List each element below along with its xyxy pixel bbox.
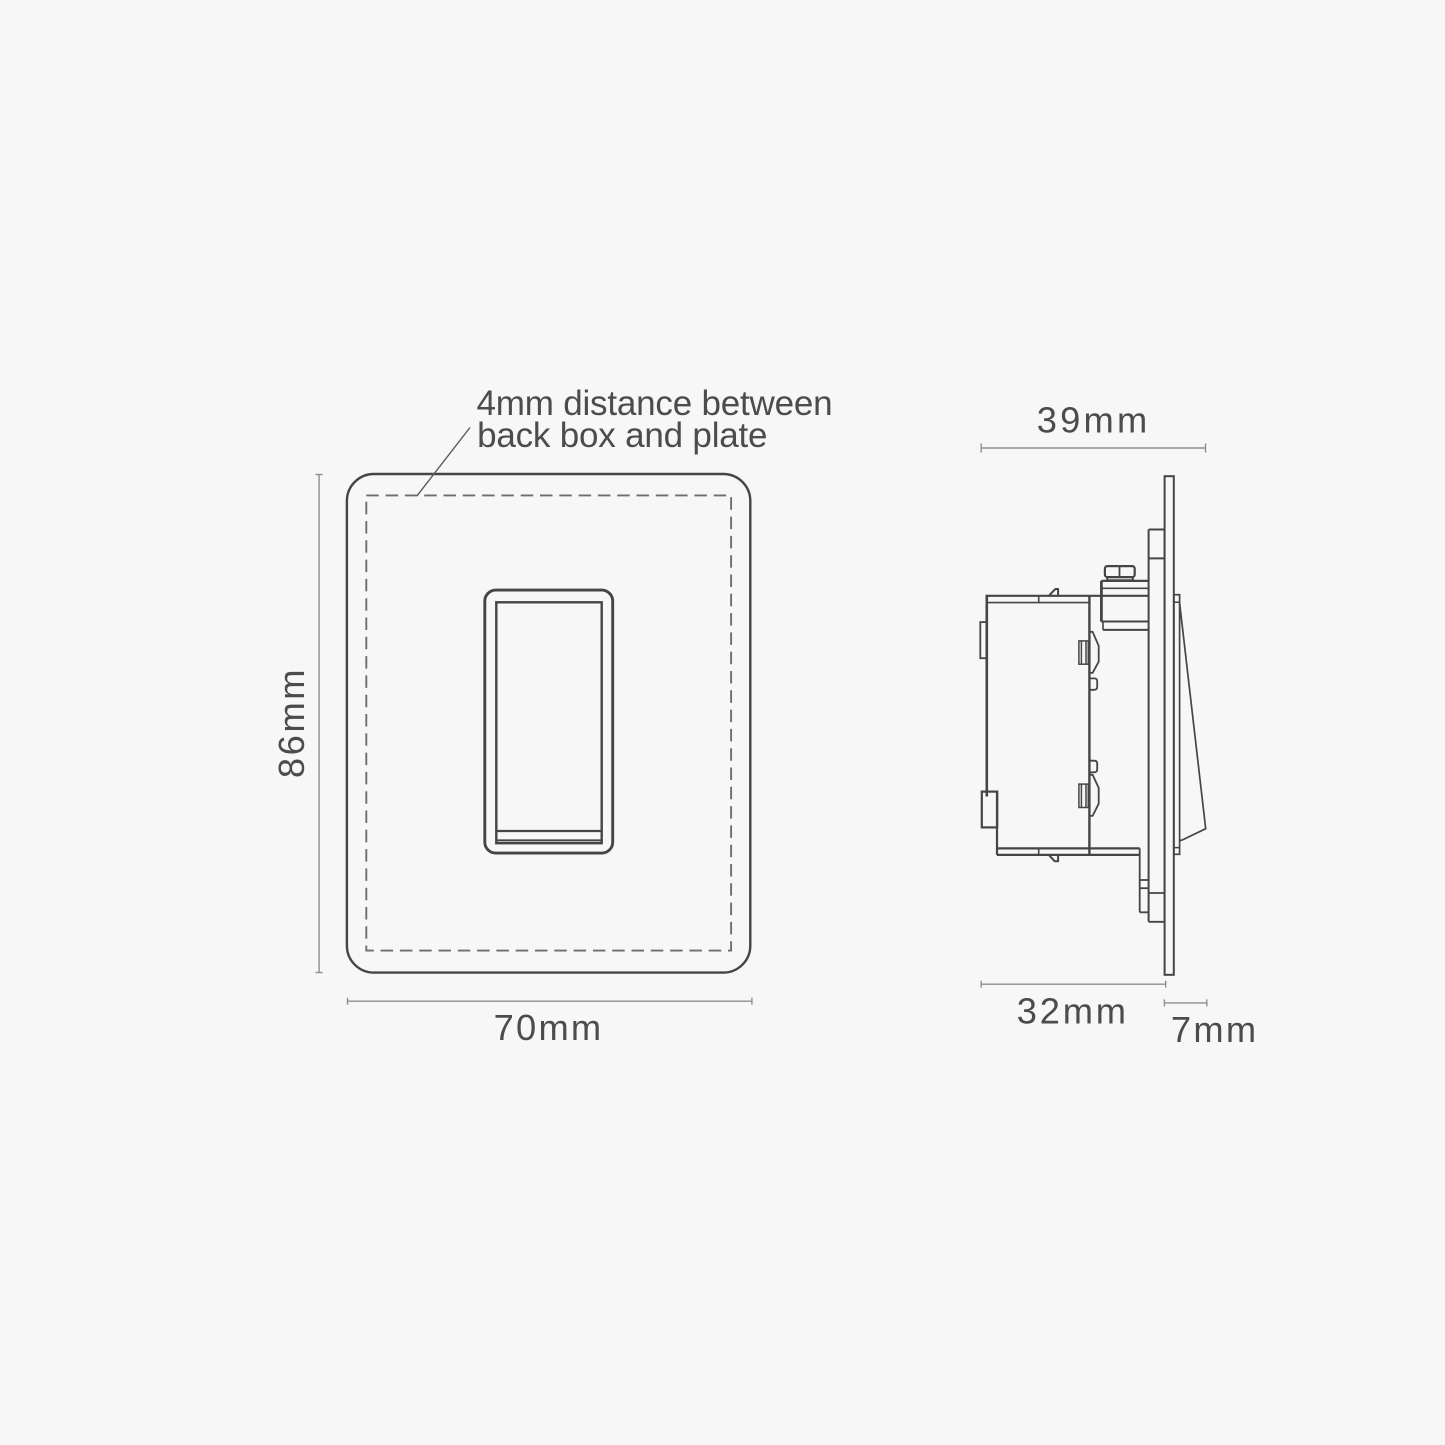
svg-text:86mm: 86mm: [271, 667, 312, 778]
svg-text:70mm: 70mm: [494, 1007, 604, 1048]
svg-text:7mm: 7mm: [1171, 1009, 1259, 1050]
svg-text:39mm: 39mm: [1037, 400, 1151, 441]
svg-text:back box and plate: back box and plate: [477, 416, 767, 455]
svg-text:32mm: 32mm: [1017, 991, 1129, 1032]
